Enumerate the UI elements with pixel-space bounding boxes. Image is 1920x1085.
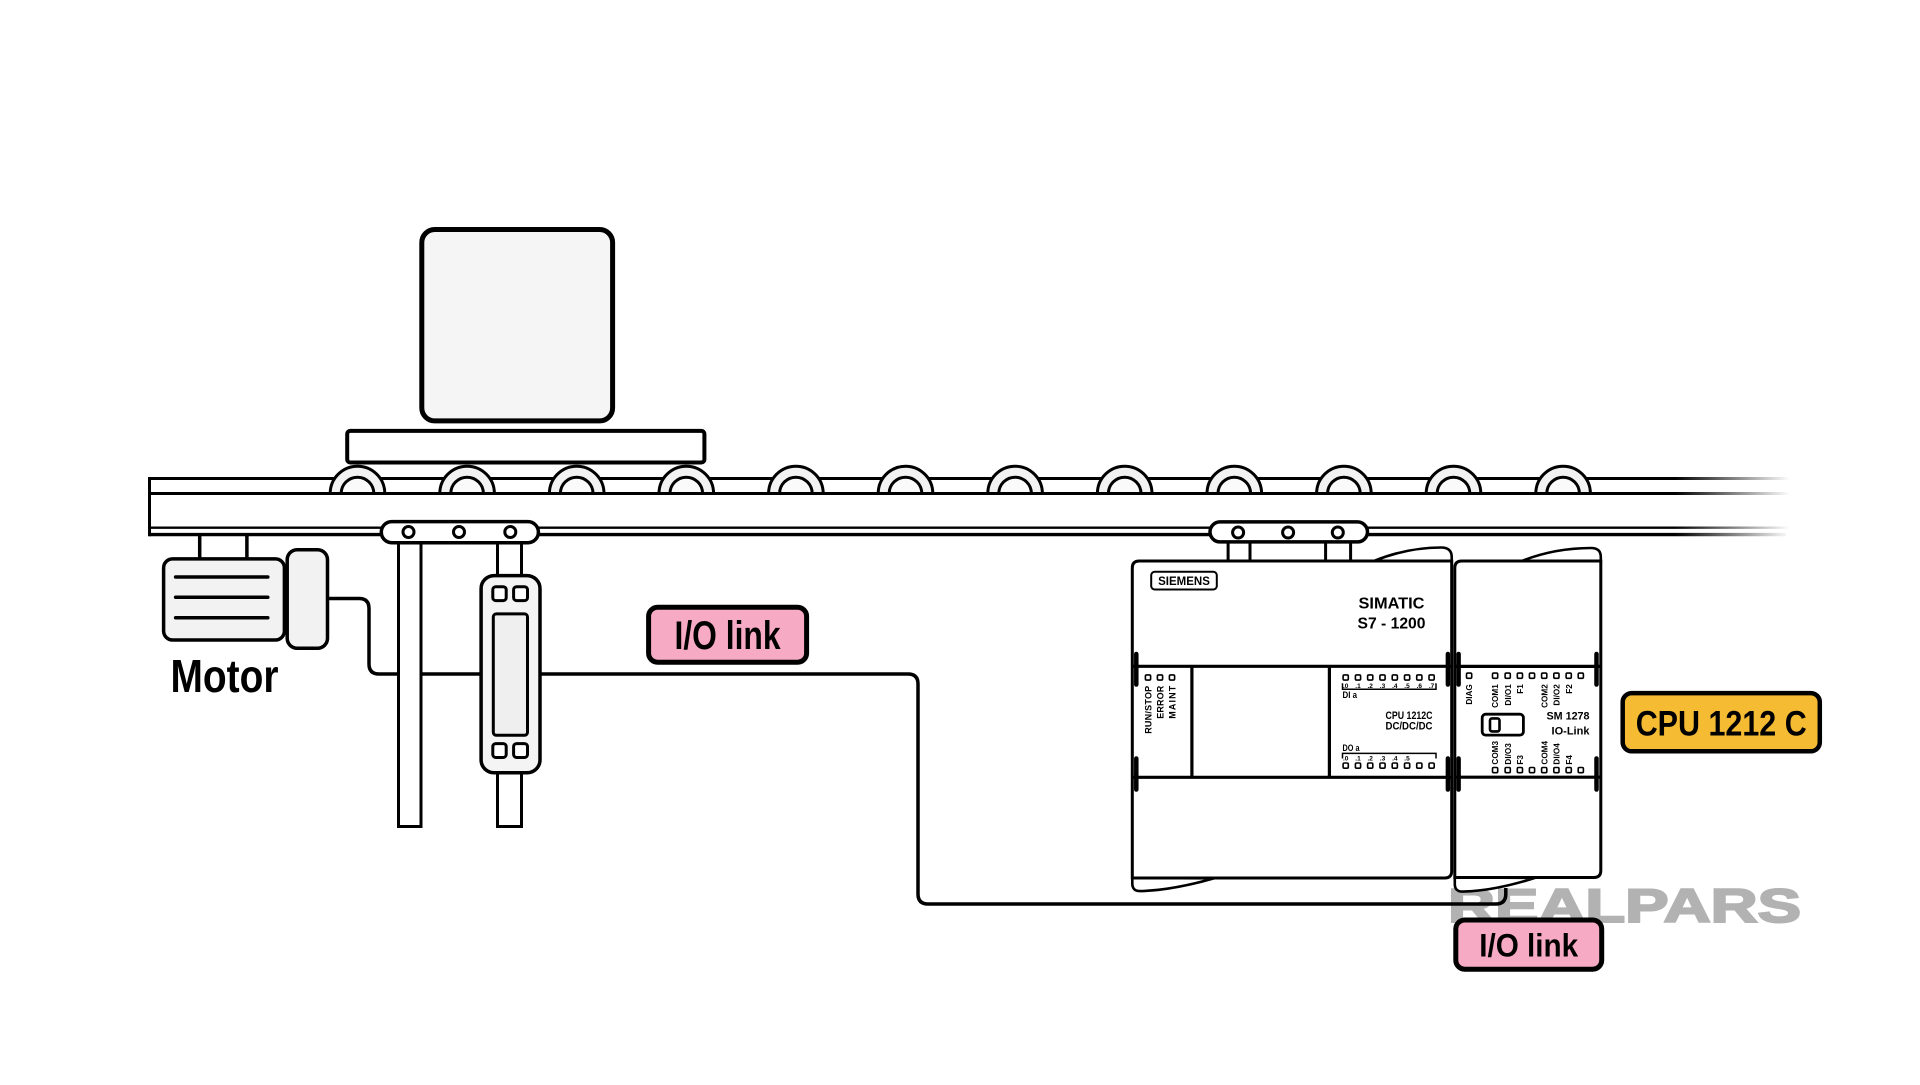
- svg-text:DI/O1: DI/O1: [1504, 684, 1513, 706]
- svg-text:DC/DC/DC: DC/DC/DC: [1386, 721, 1433, 733]
- svg-text:COM4: COM4: [1540, 740, 1549, 764]
- svg-text:RUN/STOP: RUN/STOP: [1143, 686, 1153, 734]
- svg-text:.0: .0: [1343, 683, 1349, 690]
- svg-text:.5: .5: [1404, 683, 1410, 690]
- svg-text:COM3: COM3: [1491, 740, 1500, 764]
- svg-text:I/O link: I/O link: [1479, 928, 1578, 964]
- svg-text:SIEMENS: SIEMENS: [1158, 576, 1210, 588]
- svg-text:ERROR: ERROR: [1155, 685, 1165, 719]
- svg-text:IO-Link: IO-Link: [1552, 726, 1591, 738]
- svg-text:S7 - 1200: S7 - 1200: [1358, 616, 1426, 633]
- svg-text:.3: .3: [1380, 683, 1386, 690]
- svg-text:.2: .2: [1367, 755, 1373, 762]
- svg-text:.6: .6: [1417, 683, 1423, 690]
- svg-text:.4: .4: [1392, 755, 1398, 762]
- svg-text:.1: .1: [1355, 683, 1361, 690]
- svg-text:.2: .2: [1367, 683, 1373, 690]
- svg-text:MAINT: MAINT: [1167, 685, 1177, 719]
- svg-text:F1: F1: [1516, 684, 1525, 694]
- svg-text:I/O link: I/O link: [675, 614, 782, 658]
- svg-text:COM1: COM1: [1491, 684, 1500, 708]
- svg-text:DI/O4: DI/O4: [1553, 743, 1562, 765]
- svg-text:COM2: COM2: [1540, 684, 1549, 708]
- svg-text:.5: .5: [1404, 755, 1410, 762]
- svg-text:SIMATIC: SIMATIC: [1359, 596, 1425, 613]
- svg-text:DI/O2: DI/O2: [1553, 684, 1562, 706]
- svg-text:DIAG: DIAG: [1465, 684, 1474, 704]
- svg-text:SM 1278: SM 1278: [1547, 711, 1590, 723]
- svg-text:DI/O3: DI/O3: [1504, 743, 1513, 765]
- svg-text:F2: F2: [1565, 684, 1574, 694]
- svg-text:F3: F3: [1516, 755, 1525, 765]
- svg-text:.3: .3: [1380, 755, 1386, 762]
- svg-text:.4: .4: [1392, 683, 1398, 690]
- svg-text:DI a: DI a: [1343, 690, 1358, 701]
- svg-text:F4: F4: [1565, 755, 1574, 765]
- svg-text:.0: .0: [1343, 755, 1349, 762]
- svg-text:.1: .1: [1355, 755, 1361, 762]
- svg-text:Motor: Motor: [171, 650, 279, 702]
- svg-text:CPU 1212 C: CPU 1212 C: [1636, 705, 1807, 744]
- svg-text:DO a: DO a: [1343, 743, 1361, 754]
- svg-text:.7: .7: [1429, 683, 1435, 690]
